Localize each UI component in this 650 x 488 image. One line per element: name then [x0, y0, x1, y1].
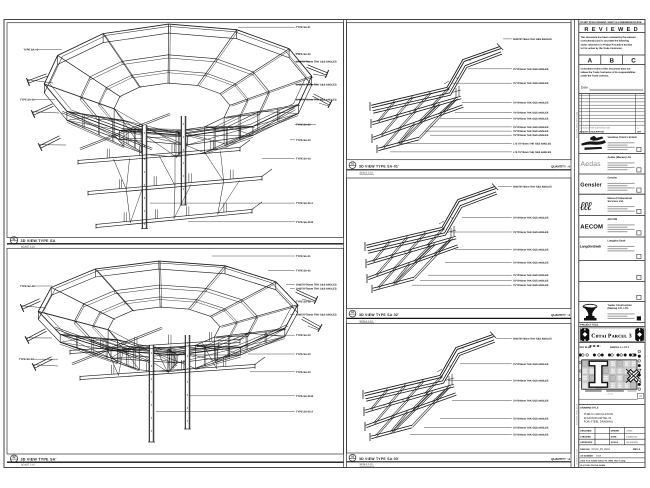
- svg-text:SHS/76*76mm THK G&S ANGLES: SHS/76*76mm THK G&S ANGLES: [513, 186, 552, 189]
- svg-text:75*75*6mm THK G&S ANGLES: 75*75*6mm THK G&S ANGLES: [513, 400, 549, 403]
- svg-text:SHS/76*76mm THK G&S ANGLES: SHS/76*76mm THK G&S ANGLES: [296, 288, 337, 291]
- svg-text:CHECKED: CHECKED: [580, 435, 591, 438]
- svg-text:SHS/76*76mm THK G&S ANGLES: SHS/76*76mm THK G&S ANGLES: [296, 83, 337, 86]
- svg-text:SHS/76*76mm THK G&S ANGLES: SHS/76*76mm THK G&S ANGLES: [296, 313, 337, 316]
- svg-text:PARCEL 1, LOT 2: PARCEL 1, LOT 2: [610, 346, 630, 349]
- svg-text:FOR STEEL DRAWING: FOR STEEL DRAWING: [584, 421, 613, 424]
- svg-text:TYPE SA-02: TYPE SA-02: [296, 124, 311, 127]
- svg-text:TYPE SA-05 B: TYPE SA-05 B: [296, 395, 313, 398]
- svg-text:B: B: [609, 57, 614, 64]
- svg-text:TYPE SA-04: TYPE SA-04: [296, 371, 311, 374]
- svg-text:75*75*6mm THK G&S ANGLES: 75*75*6mm THK G&S ANGLES: [513, 231, 549, 234]
- svg-text:75*75*6mm THK G&S ANGLES: 75*75*6mm THK G&S ANGLES: [513, 111, 549, 114]
- svg-text:TYPE SA-03: TYPE SA-03: [296, 334, 311, 337]
- svg-text:SCALE 1:10: SCALE 1:10: [21, 464, 35, 467]
- svg-text:This document has been reviewe: This document has been reviewed by the r…: [581, 36, 636, 39]
- svg-text:Consultant(s) and is accorded: Consultant(s) and is accorded the follow…: [581, 40, 630, 43]
- svg-text:75*75*6mm THK G&S ANGLES: 75*75*6mm THK G&S ANGLES: [513, 248, 549, 251]
- svg-text:DWG FILE NAME 51518_P3_8584_RE: DWG FILE NAME 51518_P3_8584_REV-A.dwg: [580, 459, 626, 462]
- svg-text:Aedas (Macau) Ltd.: Aedas (Macau) Ltd.: [608, 156, 632, 159]
- svg-text:75*75*6mm THK G&S ANGLES: 75*75*6mm THK G&S ANGLES: [513, 216, 549, 219]
- svg-text:DRAWN: DRAWN: [611, 430, 620, 433]
- svg-text:75*75*6mm THK G&S ANGLES: 75*75*6mm THK G&S ANGLES: [513, 68, 549, 71]
- svg-text:3/528: 3/528: [596, 455, 602, 458]
- svg-text:TYPE SA-05 A: TYPE SA-05 A: [296, 411, 313, 414]
- svg-text:FOUNTAIN DETAIL 01: FOUNTAIN DETAIL 01: [584, 417, 612, 420]
- svg-text:SCALE 1:10: SCALE 1:10: [360, 320, 374, 323]
- svg-text:PLOTTED ON THE NAME: PLOTTED ON THE NAME: [580, 464, 605, 467]
- svg-text:DWG NO: DWG NO: [580, 448, 590, 451]
- svg-text:QUANTITY : 4: QUANTITY : 4: [551, 457, 570, 461]
- svg-text:TYPE SA-01: TYPE SA-01: [296, 255, 311, 258]
- svg-text:LangdonSeah: LangdonSeah: [580, 245, 601, 249]
- svg-text:SHS/76*76mm THK G&S ANGLES: SHS/76*76mm THK G&S ANGLES: [296, 60, 337, 63]
- svg-text:DESCRIPTION: DESCRIPTION: [590, 130, 604, 133]
- svg-text:14/05/2013 10:35: 14/05/2013 10:35: [575, 449, 578, 465]
- svg-text:75*75*6mm THK G&S ANGLES: 75*75*6mm THK G&S ANGLES: [513, 117, 549, 120]
- svg-text:SCALE 1:10: SCALE 1:10: [360, 171, 374, 174]
- svg-text:TYPE SA-02: TYPE SA-02: [296, 269, 311, 272]
- svg-text:75*75*6mm THK G&S ANGLES: 75*75*6mm THK G&S ANGLES: [513, 280, 549, 283]
- svg-text:03: 03: [351, 455, 354, 458]
- svg-text:TYPE SA-05 B: TYPE SA-05 B: [296, 221, 313, 224]
- svg-text:14/05/2013: 14/05/2013: [626, 435, 638, 438]
- svg-text:C: C: [631, 57, 636, 64]
- svg-text:L75 75*75mm THK G&S ANGLES: L75 75*75mm THK G&S ANGLES: [513, 151, 551, 154]
- svg-text:3D VIEW TYPE SA-02': 3D VIEW TYPE SA-02': [359, 313, 399, 317]
- svg-text:01: 01: [351, 163, 354, 166]
- svg-text:75*75*6mm THK G&S ANGLES: 75*75*6mm THK G&S ANGLES: [513, 363, 549, 366]
- svg-text:DRAWING TITLE: DRAWING TITLE: [580, 406, 599, 409]
- svg-text:51518_P3_8584_REV-A.dwg: 51518_P3_8584_REV-A.dwg: [575, 112, 578, 138]
- svg-text:75*75*6mm THK G&S ANGLES: 75*75*6mm THK G&S ANGLES: [513, 274, 549, 277]
- svg-text:75*75*6mm THK G&S ANGLES: 75*75*6mm THK G&S ANGLES: [513, 379, 549, 382]
- svg-text:75*75*6mm THK G&S ANGLES: 75*75*6mm THK G&S ANGLES: [513, 261, 549, 264]
- svg-text:TYPE SA-02: TYPE SA-02: [296, 301, 311, 304]
- svg-text:N: N: [640, 395, 642, 398]
- svg-text:SCALE: SCALE: [611, 441, 619, 444]
- svg-text:REV A: REV A: [633, 448, 640, 451]
- svg-text:3D VIEW TYPE SA: 3D VIEW TYPE SA: [21, 239, 56, 243]
- svg-text:51518_P3_8584_A3.plt: 51518_P3_8584_A3.plt: [575, 404, 578, 425]
- svg-text:TYPE SA-01: TYPE SA-01: [24, 49, 39, 52]
- svg-text:75*75*6mm THK G&S ANGLES: 75*75*6mm THK G&S ANGLES: [513, 126, 549, 129]
- svg-text:PUBLIC CIRCULATION: PUBLIC CIRCULATION: [584, 413, 613, 416]
- svg-text:(Macau) CO. LTD.: (Macau) CO. LTD.: [608, 307, 630, 310]
- svg-text:TYPE SA-02: TYPE SA-02: [20, 99, 35, 102]
- svg-text:75*75*6mm THK G&S ANGLES: 75*75*6mm THK G&S ANGLES: [513, 130, 549, 133]
- svg-text:Gensler: Gensler: [580, 182, 602, 189]
- svg-text:Langdon Seah: Langdon Seah: [608, 240, 626, 243]
- svg-text:Cᴏᴛᴀɪ Pᴀʀᴄᴇʟ 3: Cᴏᴛᴀɪ Pᴀʀᴄᴇʟ 3: [591, 333, 631, 339]
- svg-text:75*75*6mm THK G&S ANGLES: 75*75*6mm THK G&S ANGLES: [513, 82, 549, 85]
- svg-text:3D VIEW TYPE SA': 3D VIEW TYPE SA': [21, 458, 57, 462]
- svg-text:AECOM: AECOM: [608, 218, 618, 221]
- svg-text:ℓℓℓ: ℓℓℓ: [580, 199, 592, 213]
- svg-text:SCALE 1:10: SCALE 1:10: [21, 245, 35, 248]
- svg-text:QUANTITY : 4: QUANTITY : 4: [551, 164, 570, 168]
- svg-text:3D VIEW TYPE SA-01': 3D VIEW TYPE SA-01': [359, 164, 399, 168]
- svg-text:under the Trade Contract.: under the Trade Contract.: [581, 75, 610, 78]
- svg-text:TYPE SA-02: TYPE SA-02: [296, 53, 311, 56]
- svg-text:SHS/76*76mm THK G&S ANGLES: SHS/76*76mm THK G&S ANGLES: [513, 38, 552, 41]
- svg-text:75*75*6mm THK G&S ANGLES: 75*75*6mm THK G&S ANGLES: [513, 134, 549, 137]
- svg-text:75*75*6mm THK G&S ANGLES: 75*75*6mm THK G&S ANGLES: [513, 434, 549, 437]
- svg-text:APPROVED: APPROVED: [580, 441, 592, 444]
- svg-text:02: 02: [12, 455, 16, 459]
- svg-text:TYPE SA-01: TYPE SA-01: [296, 26, 311, 29]
- svg-text:TYPE SA-04: TYPE SA-04: [296, 139, 311, 142]
- svg-text:TYPE SA-03: TYPE SA-03: [296, 158, 311, 161]
- svg-text:status referred to in Projec: status referred to in Project Procedure …: [581, 43, 633, 46]
- svg-text:relieve the Trade Contracto: relieve the Trade Contractor of its resp…: [581, 71, 637, 74]
- svg-text:DATE: DATE: [583, 130, 589, 133]
- svg-text:DESIGNED: DESIGNED: [580, 430, 592, 433]
- svg-text:75*75*6mm THK G&S ANGLES: 75*75*6mm THK G&S ANGLES: [513, 427, 549, 430]
- svg-text:SHS/76*76mm THK G&S ANGLES: SHS/76*76mm THK G&S ANGLES: [296, 284, 337, 287]
- svg-text:51518_P3_8584: 51518_P3_8584: [592, 448, 611, 451]
- svg-text:75*75*6mm THK G&S ANGLES: 75*75*6mm THK G&S ANGLES: [513, 102, 549, 105]
- svg-text:Aedas: Aedas: [581, 161, 602, 168]
- svg-text:TYPE SA-03: TYPE SA-03: [19, 358, 34, 361]
- svg-text:Gensler: Gensler: [608, 177, 618, 180]
- svg-text:A: A: [588, 57, 593, 64]
- svg-text:Venetian Orient Limited: Venetian Orient Limited: [608, 136, 637, 139]
- svg-text:R E V I E W E D: R E V I E W E D: [584, 27, 638, 33]
- svg-text:5.4 for action by the Trade Co: 5.4 for action by the Trade Contractor.: [581, 47, 623, 50]
- svg-text:TYPE SA-03: TYPE SA-03: [296, 353, 311, 356]
- svg-text:CHAD: CHAD: [626, 430, 633, 433]
- svg-text:INIT.: INIT.: [637, 130, 642, 133]
- svg-text:02: 02: [351, 311, 354, 314]
- svg-text:75*75*6mm THK G&S ANGLES: 75*75*6mm THK G&S ANGLES: [513, 284, 549, 287]
- svg-text:AECOM: AECOM: [580, 224, 603, 231]
- svg-text:L75 75*75mm THK G&S ANGLES: L75 75*75mm THK G&S ANGLES: [513, 143, 551, 146]
- svg-text:TYPE SA-02: TYPE SA-02: [20, 285, 35, 288]
- svg-text:Consultant review of this docu: Consultant review of this document does …: [581, 67, 631, 70]
- svg-text:TYPE SA-05 A: TYPE SA-05 A: [296, 202, 313, 205]
- svg-text:AS SHOWN: AS SHOWN: [626, 441, 638, 444]
- svg-text:AS NUMBER: AS NUMBER: [580, 455, 593, 458]
- svg-text:Services Ltd.: Services Ltd.: [608, 200, 624, 203]
- svg-text:SHS/76*76mm THK G&S ANGLES: SHS/76*76mm THK G&S ANGLES: [296, 99, 337, 102]
- svg-text:05.04.13: 05.04.13: [583, 126, 590, 129]
- svg-text:SCALE 1:10: SCALE 1:10: [360, 463, 374, 466]
- svg-text:PROJECT TITLE: PROJECT TITLE: [580, 324, 598, 327]
- svg-text:3D VIEW TYPE SA-03': 3D VIEW TYPE SA-03': [359, 457, 399, 461]
- svg-text:1 2 3 4 5: 1 2 3 4 5: [606, 393, 613, 396]
- svg-text:01: 01: [12, 237, 16, 241]
- svg-text:DO NOT SCALE DRAWING. VERIFY A: DO NOT SCALE DRAWING. VERIFY ALL DIMENSI…: [580, 21, 642, 24]
- svg-text:DATE: DATE: [611, 435, 617, 438]
- svg-text:QUANTITY : 4: QUANTITY : 4: [551, 313, 570, 317]
- svg-text:SHS/76*76mm THK G&S ANGLES: SHS/76*76mm THK G&S ANGLES: [513, 338, 552, 341]
- svg-text:75*75*6mm THK G&S ANGLES: 75*75*6mm THK G&S ANGLES: [513, 417, 549, 420]
- svg-text:FOR CONSTRUCTION: FOR CONSTRUCTION: [590, 126, 610, 129]
- svg-text:Date :: Date :: [581, 85, 590, 89]
